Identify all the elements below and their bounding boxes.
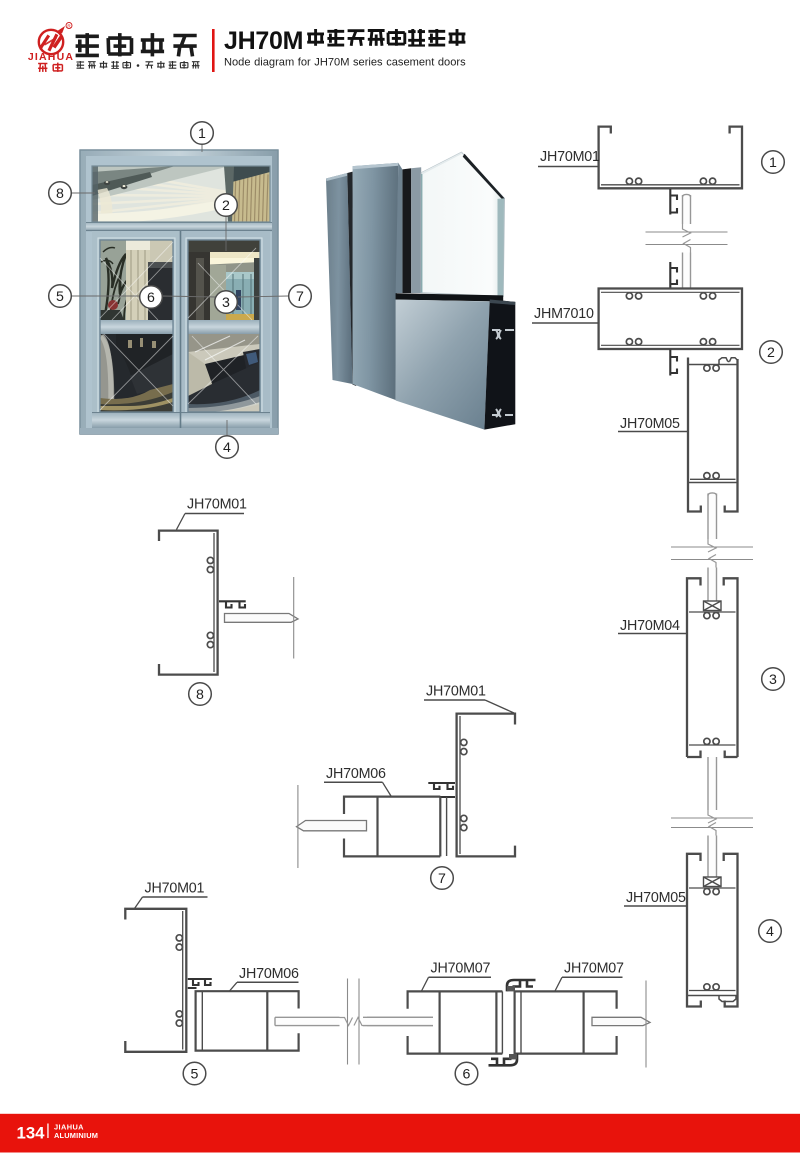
svg-text:JH70M05: JH70M05 (620, 416, 680, 432)
svg-text:2: 2 (222, 198, 230, 214)
svg-text:JH70M06: JH70M06 (326, 766, 386, 782)
svg-text:JIAHUA: JIAHUA (28, 51, 74, 63)
svg-text:6: 6 (147, 290, 155, 306)
svg-text:1: 1 (769, 155, 777, 171)
svg-text:JH70M01: JH70M01 (145, 881, 205, 897)
svg-text:1: 1 (198, 126, 206, 142)
svg-text:JH70M01: JH70M01 (426, 684, 486, 700)
svg-text:8: 8 (196, 687, 204, 703)
svg-text:5: 5 (191, 1067, 199, 1083)
svg-text:8: 8 (56, 186, 64, 202)
svg-text:JH70M07: JH70M07 (564, 961, 624, 977)
svg-text:4: 4 (766, 924, 774, 940)
svg-text:JH70M01: JH70M01 (540, 149, 600, 165)
svg-text:7: 7 (438, 871, 446, 887)
svg-text:JH70M04: JH70M04 (620, 618, 680, 634)
svg-text:JH70M05: JH70M05 (626, 890, 686, 906)
svg-text:JHM7010: JHM7010 (534, 306, 594, 322)
svg-text:3: 3 (222, 295, 230, 311)
svg-text:7: 7 (296, 289, 304, 305)
svg-text:JH70M06: JH70M06 (239, 966, 299, 982)
svg-text:6: 6 (463, 1067, 471, 1083)
svg-text:JH70M: JH70M (224, 27, 303, 55)
svg-text:Node diagram for JH70M series: Node diagram for JH70M series casement d… (224, 57, 466, 69)
svg-text:ALUMINIUM: ALUMINIUM (54, 1131, 98, 1140)
svg-text:134: 134 (17, 1124, 46, 1143)
svg-text:3: 3 (769, 672, 777, 688)
svg-text:JH70M01: JH70M01 (187, 497, 247, 513)
svg-text:5: 5 (56, 289, 64, 305)
svg-text:2: 2 (767, 345, 775, 361)
svg-text:4: 4 (223, 440, 231, 456)
svg-text:JH70M07: JH70M07 (431, 961, 491, 977)
